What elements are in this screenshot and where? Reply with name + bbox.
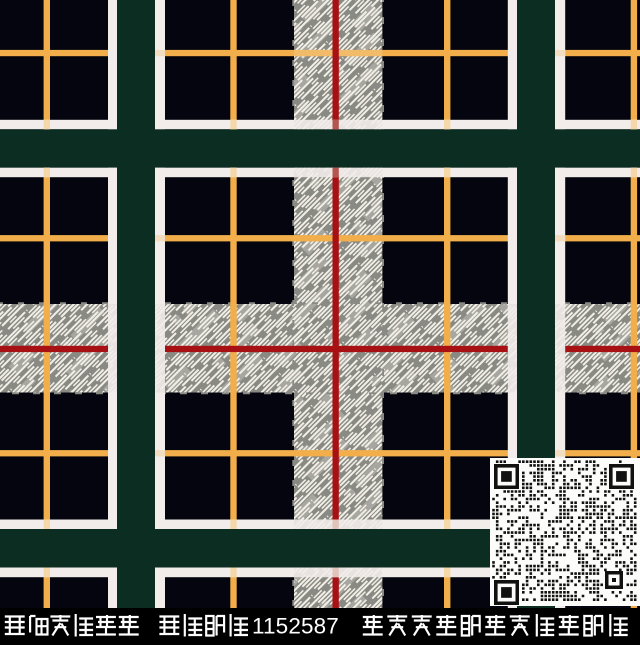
svg-text:1152587: 1152587 [252, 614, 339, 639]
